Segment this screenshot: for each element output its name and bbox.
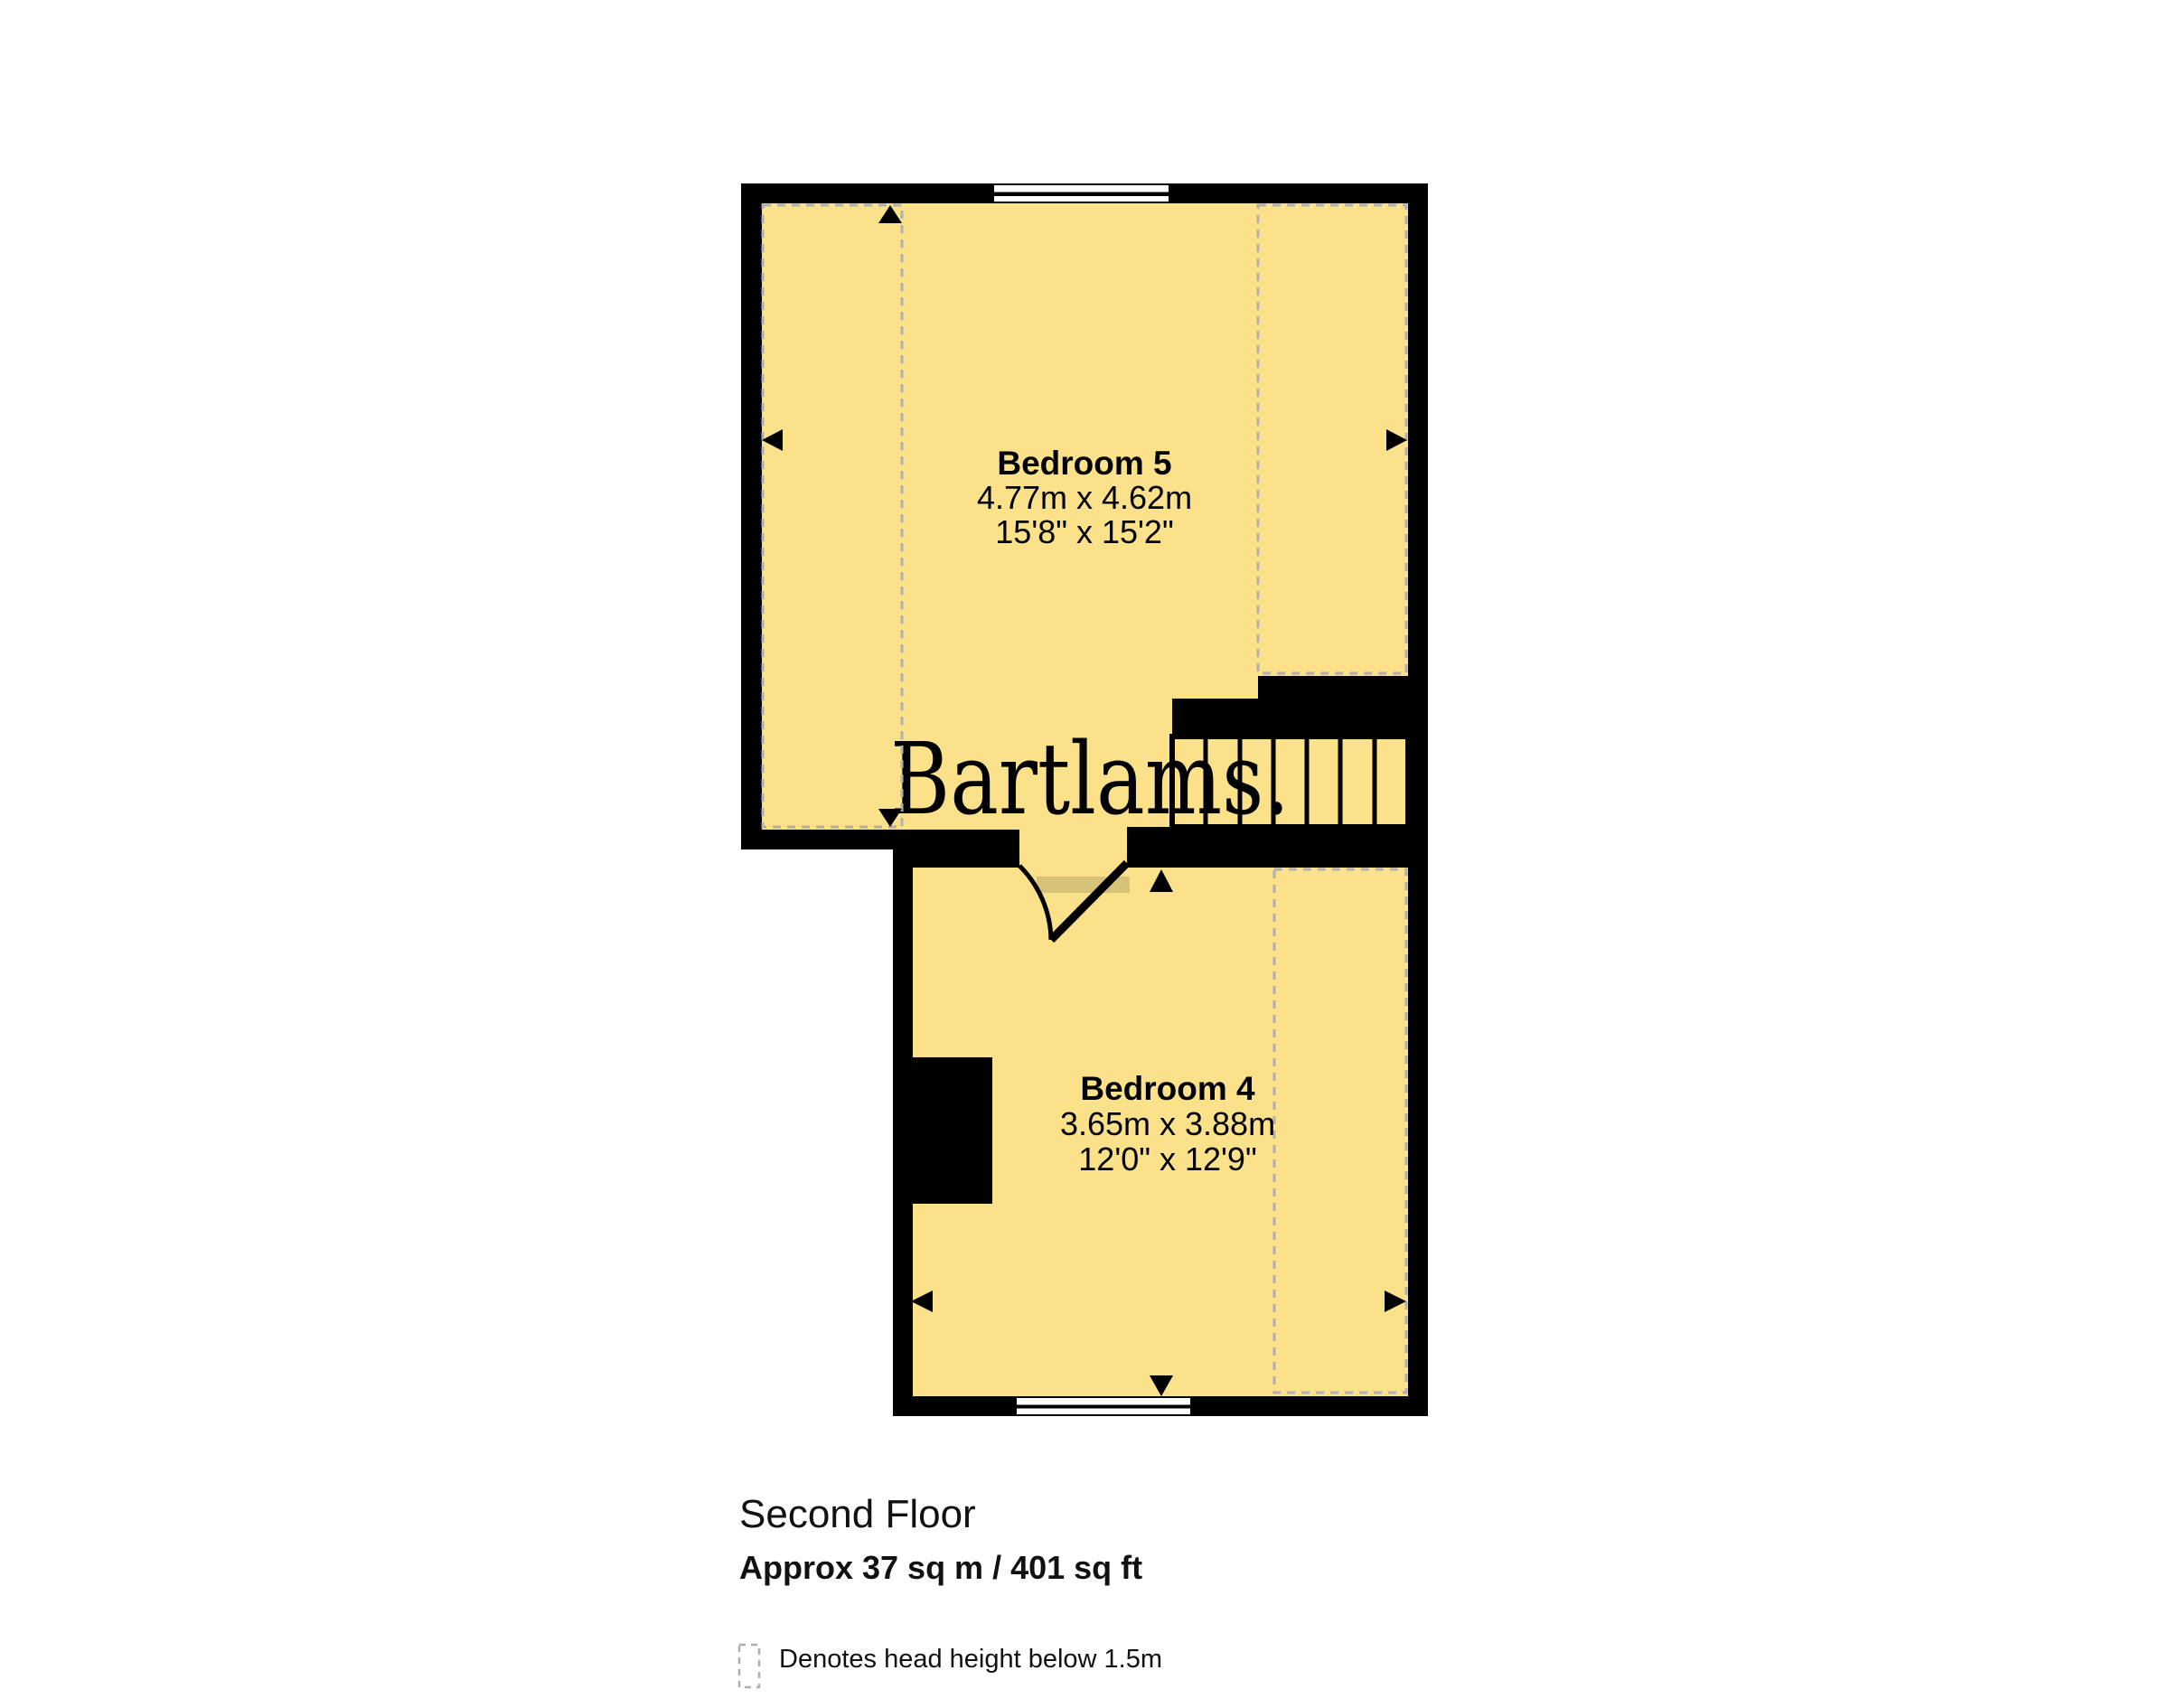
wall-left-bedroom5: [741, 183, 762, 849]
floorplan-canvas: Bartlams.: [0, 0, 2169, 1708]
wall-left-bedroom4: [893, 830, 913, 1416]
wall-right: [1408, 183, 1428, 1416]
wall-divider-under-stairs: [1127, 827, 1428, 868]
legend-label: Denotes head height below 1.5m: [779, 1645, 1162, 1674]
legend: Denotes head height below 1.5m: [739, 1645, 1162, 1687]
room-size-metric: 3.65m x 3.88m: [1060, 1105, 1275, 1142]
floorplan-page: Bartlams.: [0, 0, 2169, 1708]
room-name: Bedroom 4: [1080, 1070, 1255, 1107]
window-top: [994, 185, 1169, 202]
bedroom4-label: Bedroom 4 3.65m x 3.88m 12'0" x 12'9": [1060, 1070, 1275, 1178]
room-size-metric: 4.77m x 4.62m: [977, 479, 1192, 516]
room-size-imperial: 12'0" x 12'9": [1078, 1140, 1256, 1178]
room-size-imperial: 15'8" x 15'2": [995, 513, 1173, 550]
window-top-frame-line: [994, 192, 1169, 197]
bedroom5-label: Bedroom 5 4.77m x 4.62m 15'8" x 15'2": [977, 445, 1192, 550]
window-bottom: [1017, 1398, 1190, 1414]
window-bottom-frame-line: [1017, 1405, 1190, 1409]
chimney-breast: [913, 1057, 992, 1204]
floor-area: Approx 37 sq m / 401 sq ft: [739, 1549, 1142, 1586]
wall-bottom-bedroom5-left: [741, 830, 893, 849]
room-name: Bedroom 5: [997, 445, 1171, 482]
stairwell-wall-upper: [1258, 676, 1408, 737]
stairwell-wall-lower: [1172, 699, 1258, 737]
legend-dashed-box-icon: [739, 1645, 759, 1687]
floor-title: Second Floor: [739, 1492, 976, 1536]
